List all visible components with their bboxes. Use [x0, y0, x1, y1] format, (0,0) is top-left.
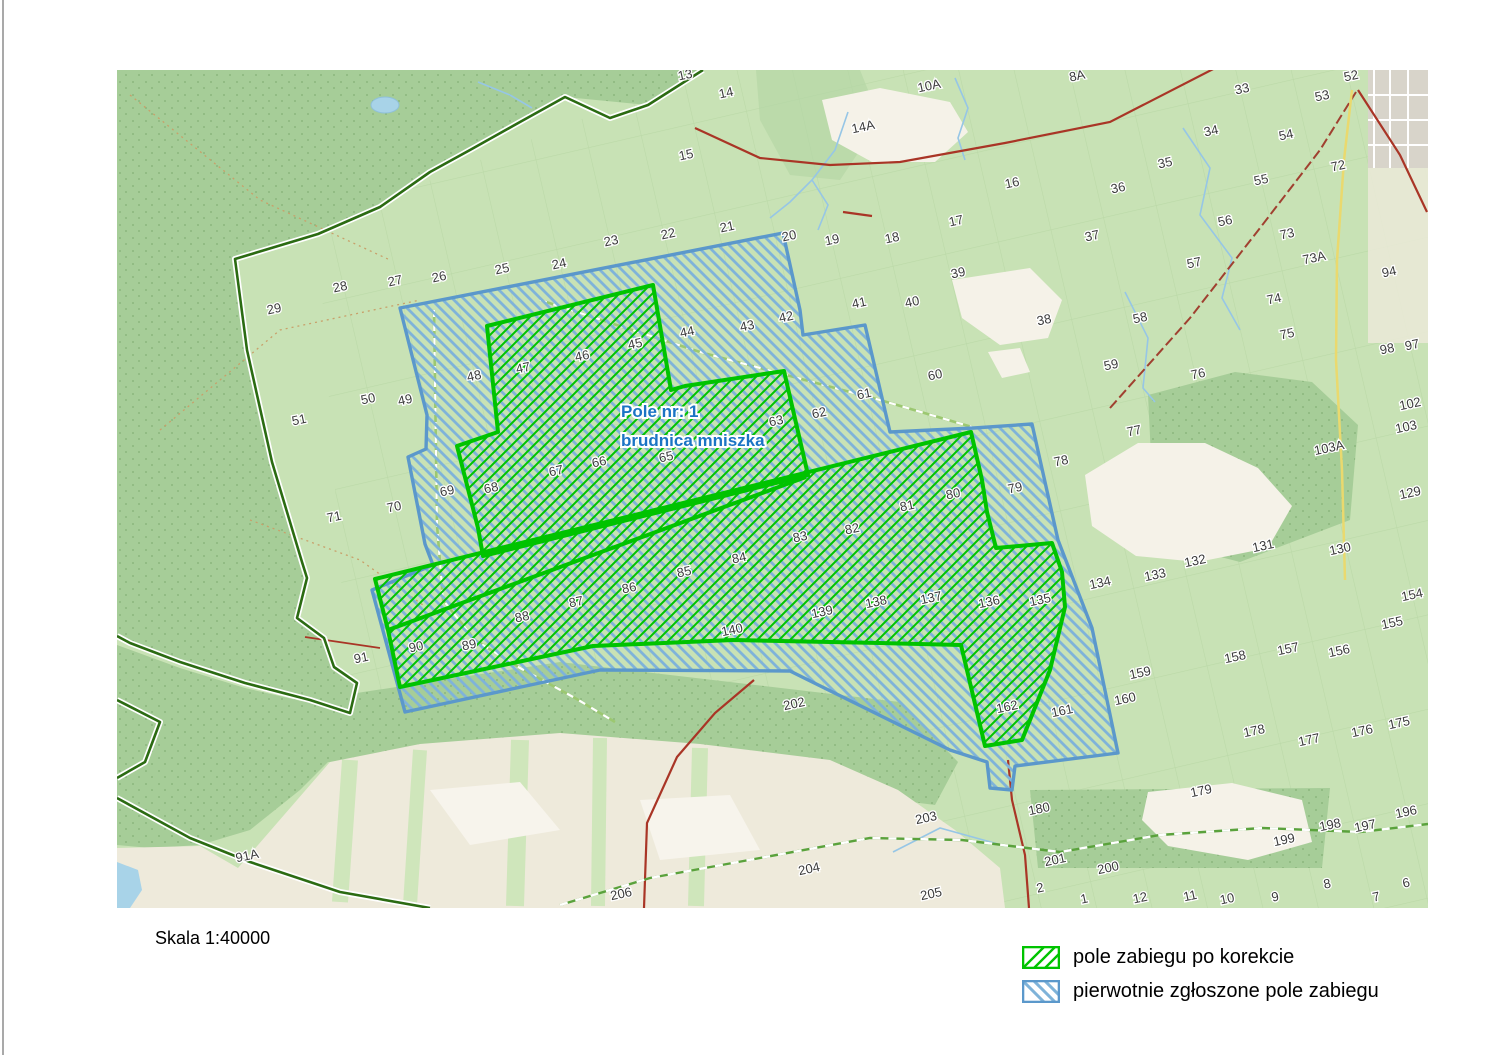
compartment-label: 76 — [1189, 365, 1206, 383]
compartment-label: 41 — [850, 294, 867, 312]
compartment-label: 68 — [482, 479, 499, 497]
page-edge-divider — [2, 0, 4, 1055]
compartment-label: 63 — [767, 412, 784, 430]
compartment-label: 70 — [385, 498, 402, 516]
compartment-label: 71 — [325, 508, 342, 526]
compartment-label: 34 — [1202, 122, 1219, 140]
compartment-label: 75 — [1278, 325, 1295, 343]
compartment-label: 38 — [1035, 311, 1052, 329]
compartment-label: 79 — [1006, 479, 1023, 497]
compartment-label: 45 — [626, 335, 643, 353]
compartment-label: 35 — [1156, 154, 1173, 172]
compartment-label: 97 — [1403, 336, 1420, 354]
compartment-label: 23 — [602, 232, 619, 250]
compartment-label: 14 — [717, 84, 734, 102]
corrected-area-swatch-icon — [1022, 946, 1060, 969]
compartment-label: 83 — [791, 528, 808, 546]
compartment-label: 47 — [514, 359, 531, 377]
compartment-label: 12 — [1131, 889, 1148, 907]
compartment-label: 40 — [903, 293, 920, 311]
legend-item-original: pierwotnie zgłoszone pole zabiegu — [1022, 978, 1379, 1004]
compartment-label: 56 — [1216, 212, 1233, 230]
compartment-label: 25 — [493, 260, 510, 278]
compartment-label: 80 — [944, 485, 961, 503]
compartment-label: 66 — [590, 453, 607, 471]
compartment-label: 94 — [1380, 263, 1397, 281]
compartment-label: 62 — [810, 404, 827, 422]
compartment-label: 46 — [573, 347, 590, 365]
compartment-label: 42 — [777, 308, 794, 326]
field-label: Pole nr: 1 — [621, 402, 698, 421]
compartment-label: 39 — [949, 264, 966, 282]
compartment-label: 36 — [1109, 179, 1126, 197]
compartment-label: 19 — [823, 231, 840, 249]
compartment-label: 84 — [730, 549, 747, 567]
compartment-label: 21 — [718, 218, 735, 236]
compartment-label: 90 — [407, 638, 424, 656]
legend-item-corrected: pole zabiegu po korekcie — [1022, 944, 1379, 970]
compartment-label: 78 — [1052, 452, 1069, 470]
compartment-label: 27 — [386, 272, 403, 290]
compartment-label: 77 — [1125, 422, 1142, 440]
compartment-label: 55 — [1252, 171, 1269, 189]
compartment-label: 85 — [675, 563, 692, 581]
compartment-label: 17 — [947, 212, 964, 230]
compartment-label: 37 — [1083, 227, 1100, 245]
original-area-swatch-icon — [1022, 980, 1060, 1003]
legend-label-corrected: pole zabiegu po korekcie — [1073, 946, 1294, 969]
scale-label: Skala 1:40000 — [155, 928, 270, 949]
compartment-label: 87 — [567, 593, 584, 611]
compartment-label: 59 — [1102, 356, 1119, 374]
compartment-label: 61 — [855, 385, 872, 403]
compartment-label: 28 — [331, 278, 348, 296]
compartment-label: 43 — [738, 317, 755, 335]
compartment-label: 26 — [430, 268, 447, 286]
legend: pole zabiegu po korekcie pierwotnie zgło… — [1022, 944, 1379, 1012]
compartment-label: 82 — [843, 520, 860, 538]
compartment-label: 29 — [265, 300, 282, 318]
page: 131414A10A8A5253333454151635365572171819… — [0, 0, 1512, 1055]
compartment-label: 81 — [898, 497, 915, 515]
compartment-label: 20 — [780, 227, 797, 245]
compartment-label: 16 — [1003, 174, 1020, 192]
legend-label-original: pierwotnie zgłoszone pole zabiegu — [1073, 980, 1379, 1003]
compartment-label: 51 — [290, 411, 307, 429]
compartment-label: 49 — [396, 391, 413, 409]
field-label: brudnica mniszka — [621, 431, 765, 450]
compartment-label: 67 — [547, 462, 564, 480]
compartment-label: 60 — [926, 366, 943, 384]
compartment-label: 91 — [352, 649, 369, 667]
map-canvas[interactable]: 131414A10A8A5253333454151635365572171819… — [117, 70, 1428, 908]
compartment-label: 24 — [550, 255, 567, 273]
compartment-label: 72 — [1329, 157, 1346, 175]
compartment-label: 53 — [1313, 87, 1330, 105]
compartment-label: 74 — [1265, 290, 1282, 308]
compartment-label: 69 — [438, 482, 455, 500]
compartment-label: 10 — [1218, 890, 1235, 908]
map-image: 131414A10A8A5253333454151635365572171819… — [117, 70, 1428, 908]
compartment-label: 89 — [460, 636, 477, 654]
compartment-label: 86 — [620, 579, 637, 597]
compartment-label: 73 — [1278, 225, 1295, 243]
compartment-label: 65 — [657, 448, 674, 466]
compartment-label: 50 — [359, 390, 376, 408]
compartment-label: 18 — [883, 229, 900, 247]
town-area — [1368, 70, 1428, 343]
compartment-label: 44 — [678, 323, 695, 341]
compartment-label: 98 — [1378, 340, 1395, 358]
compartment-label: 48 — [465, 367, 482, 385]
compartment-label: 54 — [1277, 126, 1294, 144]
compartment-label: 58 — [1131, 309, 1148, 327]
compartment-label: 33 — [1233, 80, 1250, 98]
compartment-label: 22 — [659, 225, 676, 243]
compartment-label: 57 — [1185, 254, 1202, 272]
compartment-label: 15 — [677, 146, 694, 164]
compartment-label: 88 — [513, 608, 530, 626]
